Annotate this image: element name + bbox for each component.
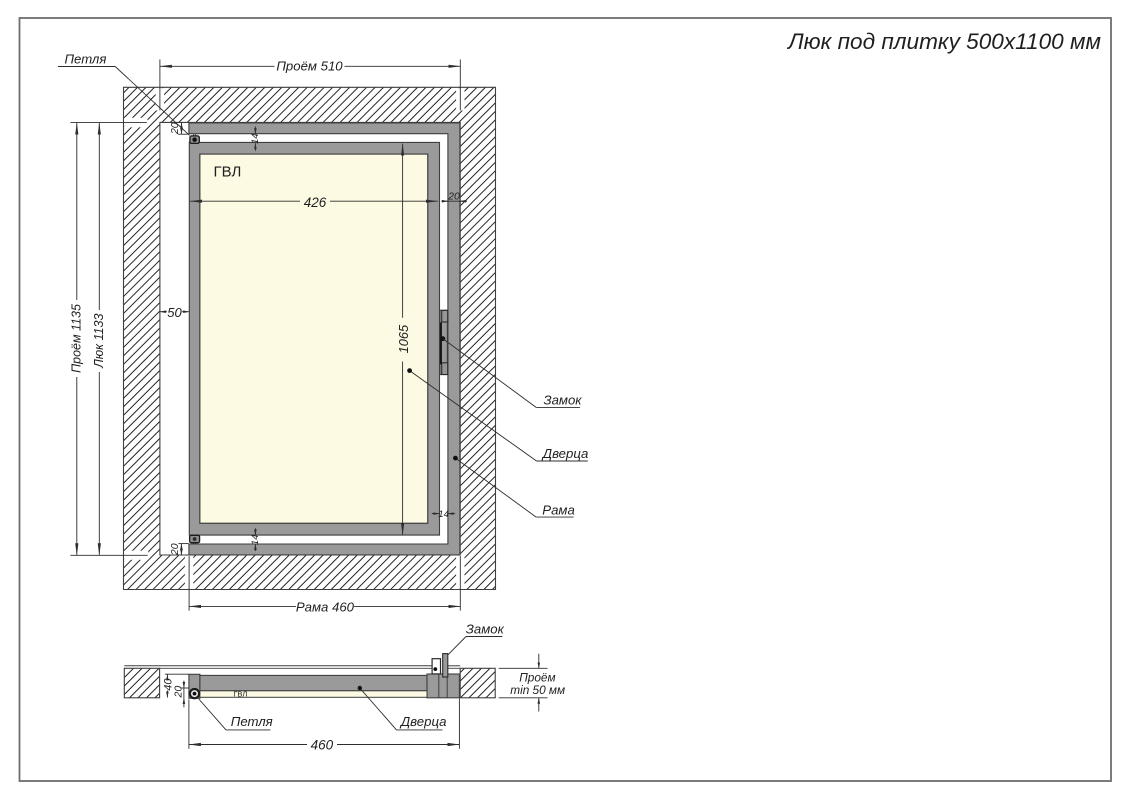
svg-text:Проём: Проём: [519, 670, 555, 684]
svg-text:20: 20: [447, 190, 460, 202]
svg-text:Петля: Петля: [231, 714, 273, 729]
svg-text:426: 426: [304, 195, 327, 210]
svg-text:Рама: Рама: [542, 502, 575, 517]
svg-text:1065: 1065: [396, 324, 411, 353]
svg-text:14: 14: [250, 535, 261, 546]
svg-text:14: 14: [250, 133, 261, 144]
svg-text:min 50 мм: min 50 мм: [510, 683, 565, 697]
svg-text:Люк под плитку 500х1100 мм: Люк под плитку 500х1100 мм: [786, 29, 1101, 54]
svg-text:Люк 1133: Люк 1133: [92, 314, 106, 369]
svg-text:20: 20: [169, 543, 181, 556]
svg-text:14: 14: [438, 509, 449, 520]
svg-text:Дверца: Дверца: [399, 714, 447, 729]
svg-text:20: 20: [173, 686, 185, 699]
svg-text:Проём 510: Проём 510: [276, 58, 343, 73]
svg-text:Рама 460: Рама 460: [296, 600, 355, 615]
svg-text:Петля: Петля: [65, 51, 107, 66]
svg-text:50: 50: [167, 305, 182, 320]
svg-text:Замок: Замок: [544, 393, 583, 408]
svg-text:Замок: Замок: [466, 622, 505, 637]
svg-text:20: 20: [169, 122, 181, 135]
svg-text:ГВЛ: ГВЛ: [233, 689, 247, 698]
svg-text:Дверца: Дверца: [541, 446, 589, 461]
svg-text:460: 460: [311, 737, 334, 752]
svg-text:ГВЛ: ГВЛ: [214, 164, 242, 181]
svg-text:Проём 1135: Проём 1135: [70, 304, 84, 373]
